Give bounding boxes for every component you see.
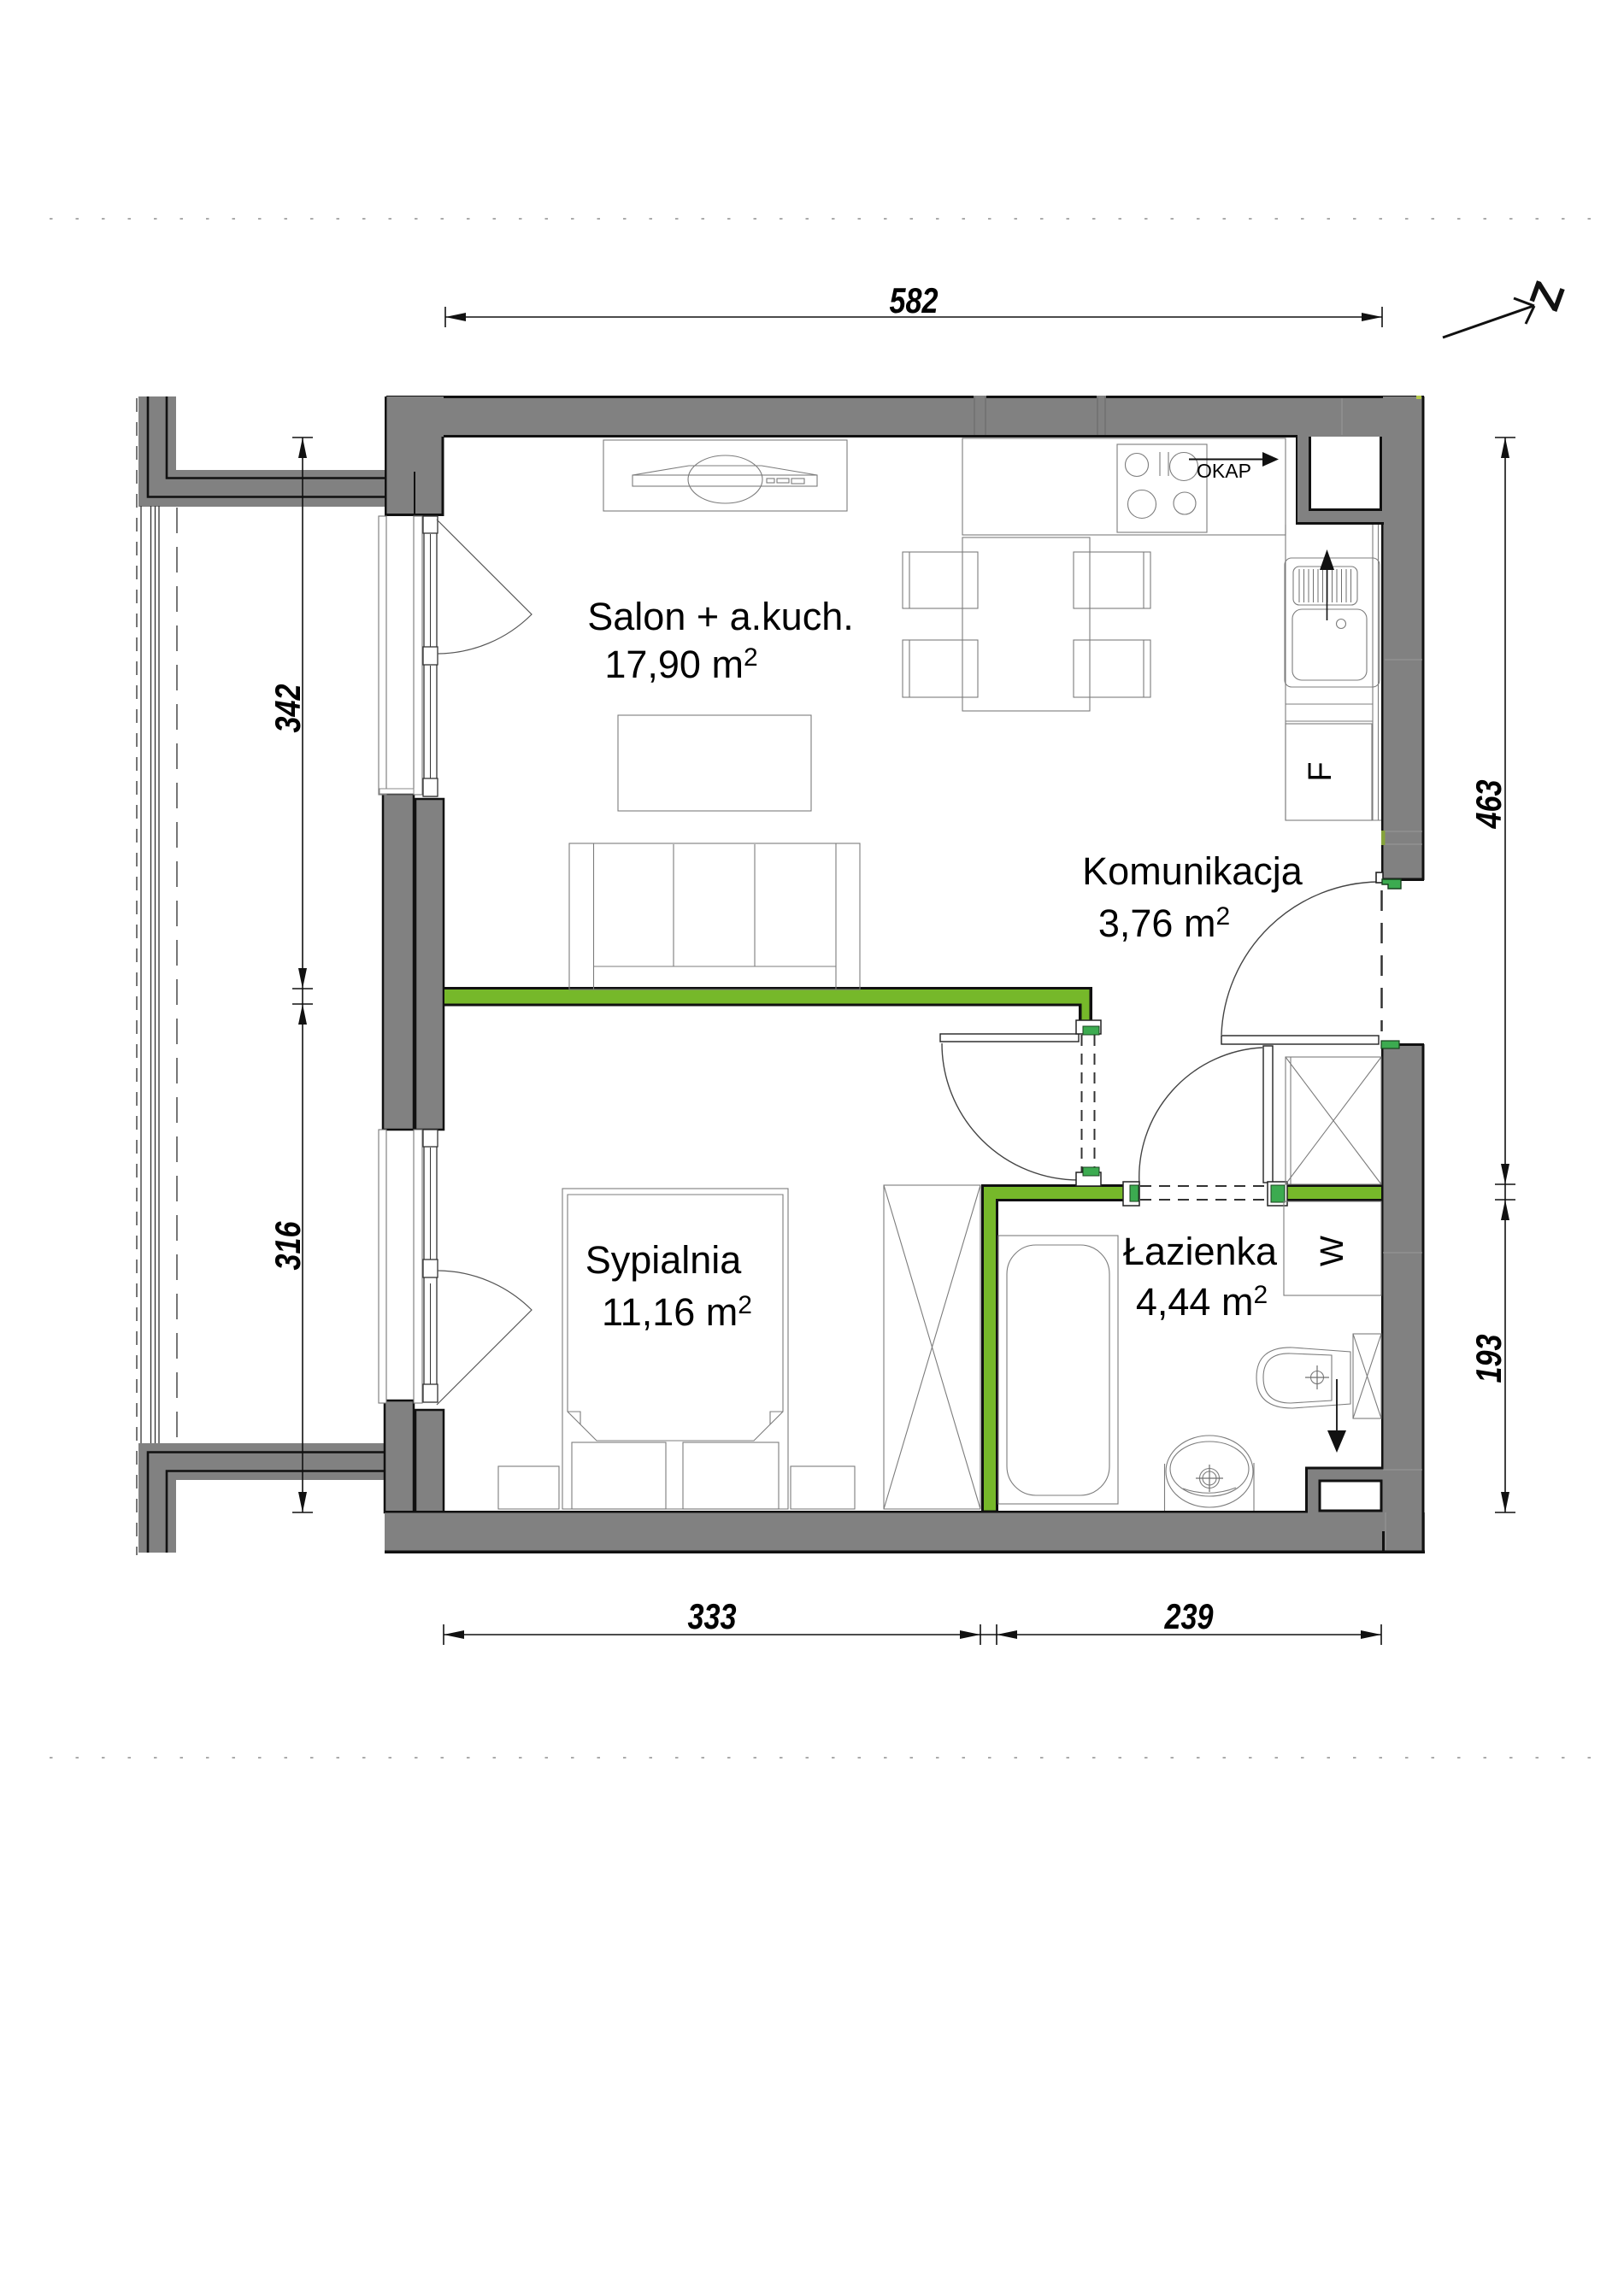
svg-text:Komunikacja: Komunikacja [1082,849,1303,893]
svg-text:Sypialnia: Sypialnia [585,1238,743,1282]
svg-text:Łazienka: Łazienka [1123,1230,1278,1273]
svg-text:316: 316 [268,1221,308,1271]
svg-text:582: 582 [890,280,939,320]
svg-text:W: W [1315,1236,1350,1266]
svg-text:342: 342 [268,684,308,733]
svg-text:17,90 m2: 17,90 m2 [604,643,757,686]
svg-text:F: F [1303,761,1339,781]
svg-text:OKAP: OKAP [1197,460,1251,482]
svg-text:463: 463 [1468,780,1509,830]
svg-text:11,16 m2: 11,16 m2 [602,1290,752,1334]
svg-text:Salon + a.kuch.: Salon + a.kuch. [587,595,853,638]
svg-text:4,44 m2: 4,44 m2 [1136,1280,1268,1324]
svg-text:333: 333 [688,1596,737,1636]
svg-text:239: 239 [1164,1596,1214,1636]
svg-text:193: 193 [1468,1335,1509,1383]
svg-text:3,76 m2: 3,76 m2 [1098,901,1230,945]
